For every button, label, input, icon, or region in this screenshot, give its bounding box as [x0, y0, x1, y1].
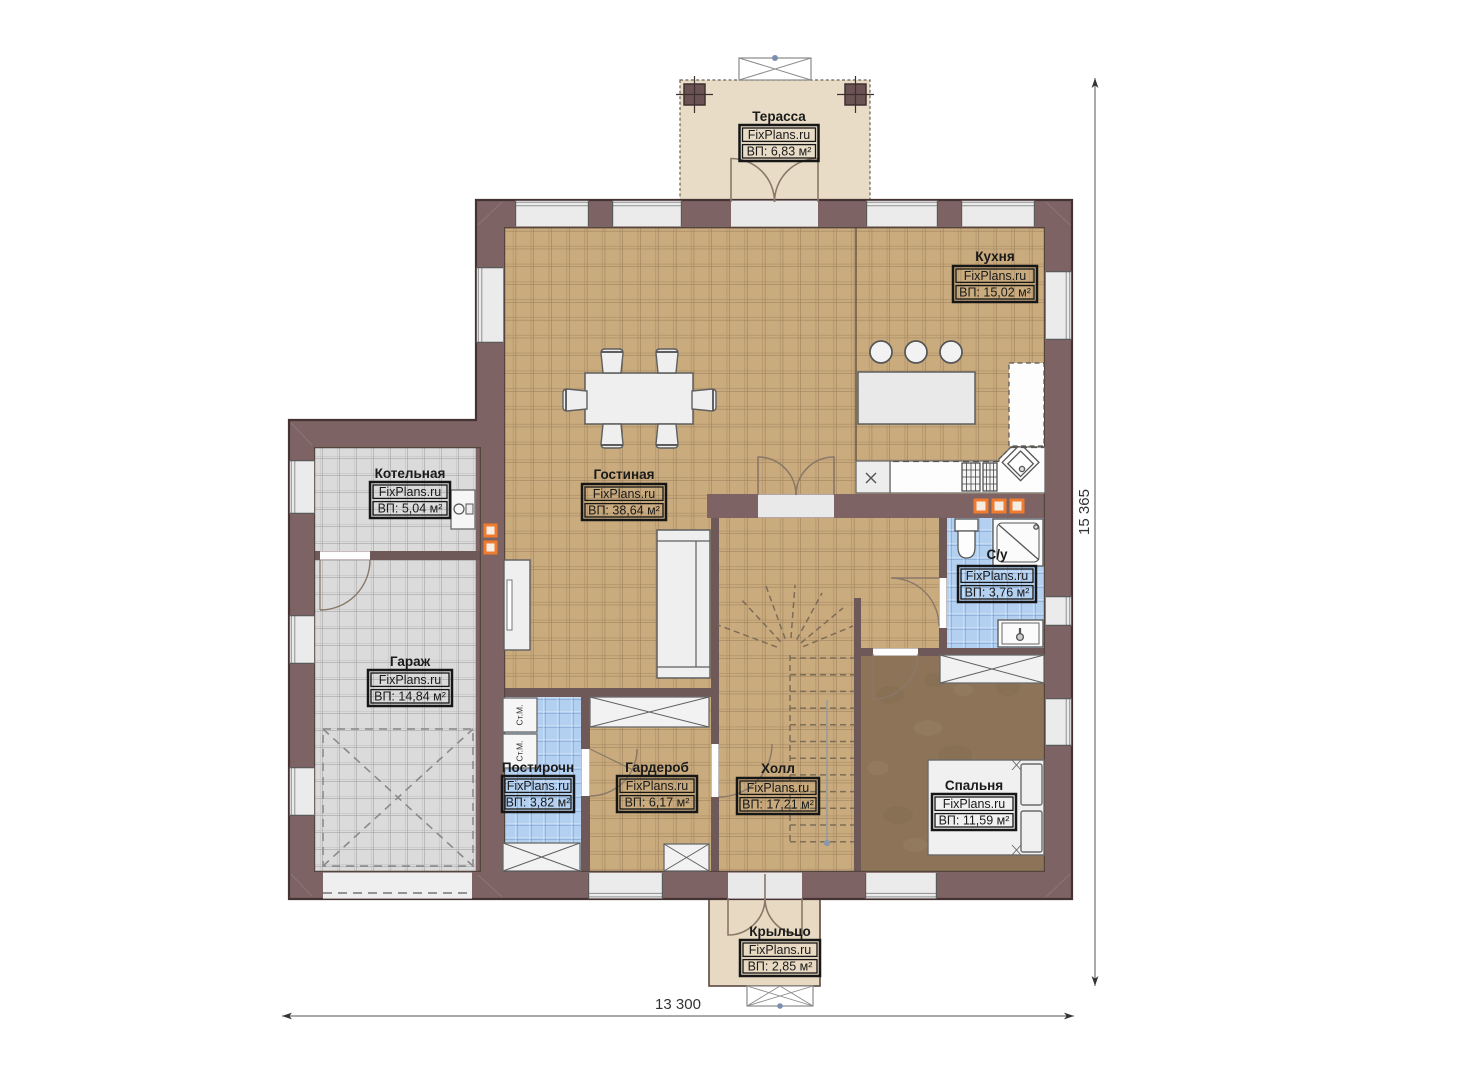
svg-text:ВП: 6,17 м²: ВП: 6,17 м²: [625, 796, 690, 810]
svg-text:Крыльцо: Крыльцо: [749, 924, 810, 939]
svg-text:ВП: 3,82 м²: ВП: 3,82 м²: [506, 796, 571, 810]
svg-text:Холл: Холл: [761, 761, 795, 776]
svg-text:ВП: 6,83 м²: ВП: 6,83 м²: [747, 145, 812, 159]
svg-text:Котельная: Котельная: [375, 466, 446, 481]
svg-text:Постирочн: Постирочн: [502, 760, 574, 775]
svg-text:ВП: 11,59 м²: ВП: 11,59 м²: [939, 814, 1010, 828]
svg-text:ВП: 17,21 м²: ВП: 17,21 м²: [742, 798, 814, 812]
svg-text:FixPlans.ru: FixPlans.ru: [943, 797, 1006, 811]
svg-text:ВП: 14,84 м²: ВП: 14,84 м²: [374, 690, 446, 704]
svg-text:ВП: 15,02 м²: ВП: 15,02 м²: [959, 286, 1031, 300]
svg-text:FixPlans.ru: FixPlans.ru: [626, 779, 689, 793]
svg-text:Терасса: Терасса: [752, 109, 806, 124]
svg-text:С/у: С/у: [986, 547, 1008, 562]
svg-text:Гараж: Гараж: [390, 654, 431, 669]
svg-text:Кухня: Кухня: [975, 249, 1014, 264]
svg-text:ВП: 3,76 м²: ВП: 3,76 м²: [965, 586, 1030, 600]
svg-text:Ст.М.: Ст.М.: [514, 705, 524, 726]
svg-text:Гостиная: Гостиная: [593, 467, 654, 482]
svg-text:Гардероб: Гардероб: [625, 760, 689, 775]
svg-text:FixPlans.ru: FixPlans.ru: [748, 128, 811, 142]
svg-text:Спальня: Спальня: [945, 778, 1003, 793]
svg-text:Ст.М.: Ст.М.: [514, 741, 524, 762]
svg-text:FixPlans.ru: FixPlans.ru: [379, 673, 442, 687]
svg-text:FixPlans.ru: FixPlans.ru: [966, 569, 1029, 583]
svg-text:ВП: 38,64 м²: ВП: 38,64 м²: [588, 504, 660, 518]
svg-text:15 365: 15 365: [1076, 489, 1093, 535]
svg-text:ВП: 5,04 м²: ВП: 5,04 м²: [378, 502, 443, 516]
svg-text:13 300: 13 300: [655, 996, 701, 1013]
svg-text:FixPlans.ru: FixPlans.ru: [593, 487, 656, 501]
svg-text:FixPlans.ru: FixPlans.ru: [507, 779, 570, 793]
svg-text:FixPlans.ru: FixPlans.ru: [747, 781, 810, 795]
svg-text:FixPlans.ru: FixPlans.ru: [379, 485, 442, 499]
svg-text:ВП: 2,85 м²: ВП: 2,85 м²: [748, 960, 813, 974]
svg-text:FixPlans.ru: FixPlans.ru: [749, 943, 812, 957]
svg-text:FixPlans.ru: FixPlans.ru: [964, 269, 1027, 283]
